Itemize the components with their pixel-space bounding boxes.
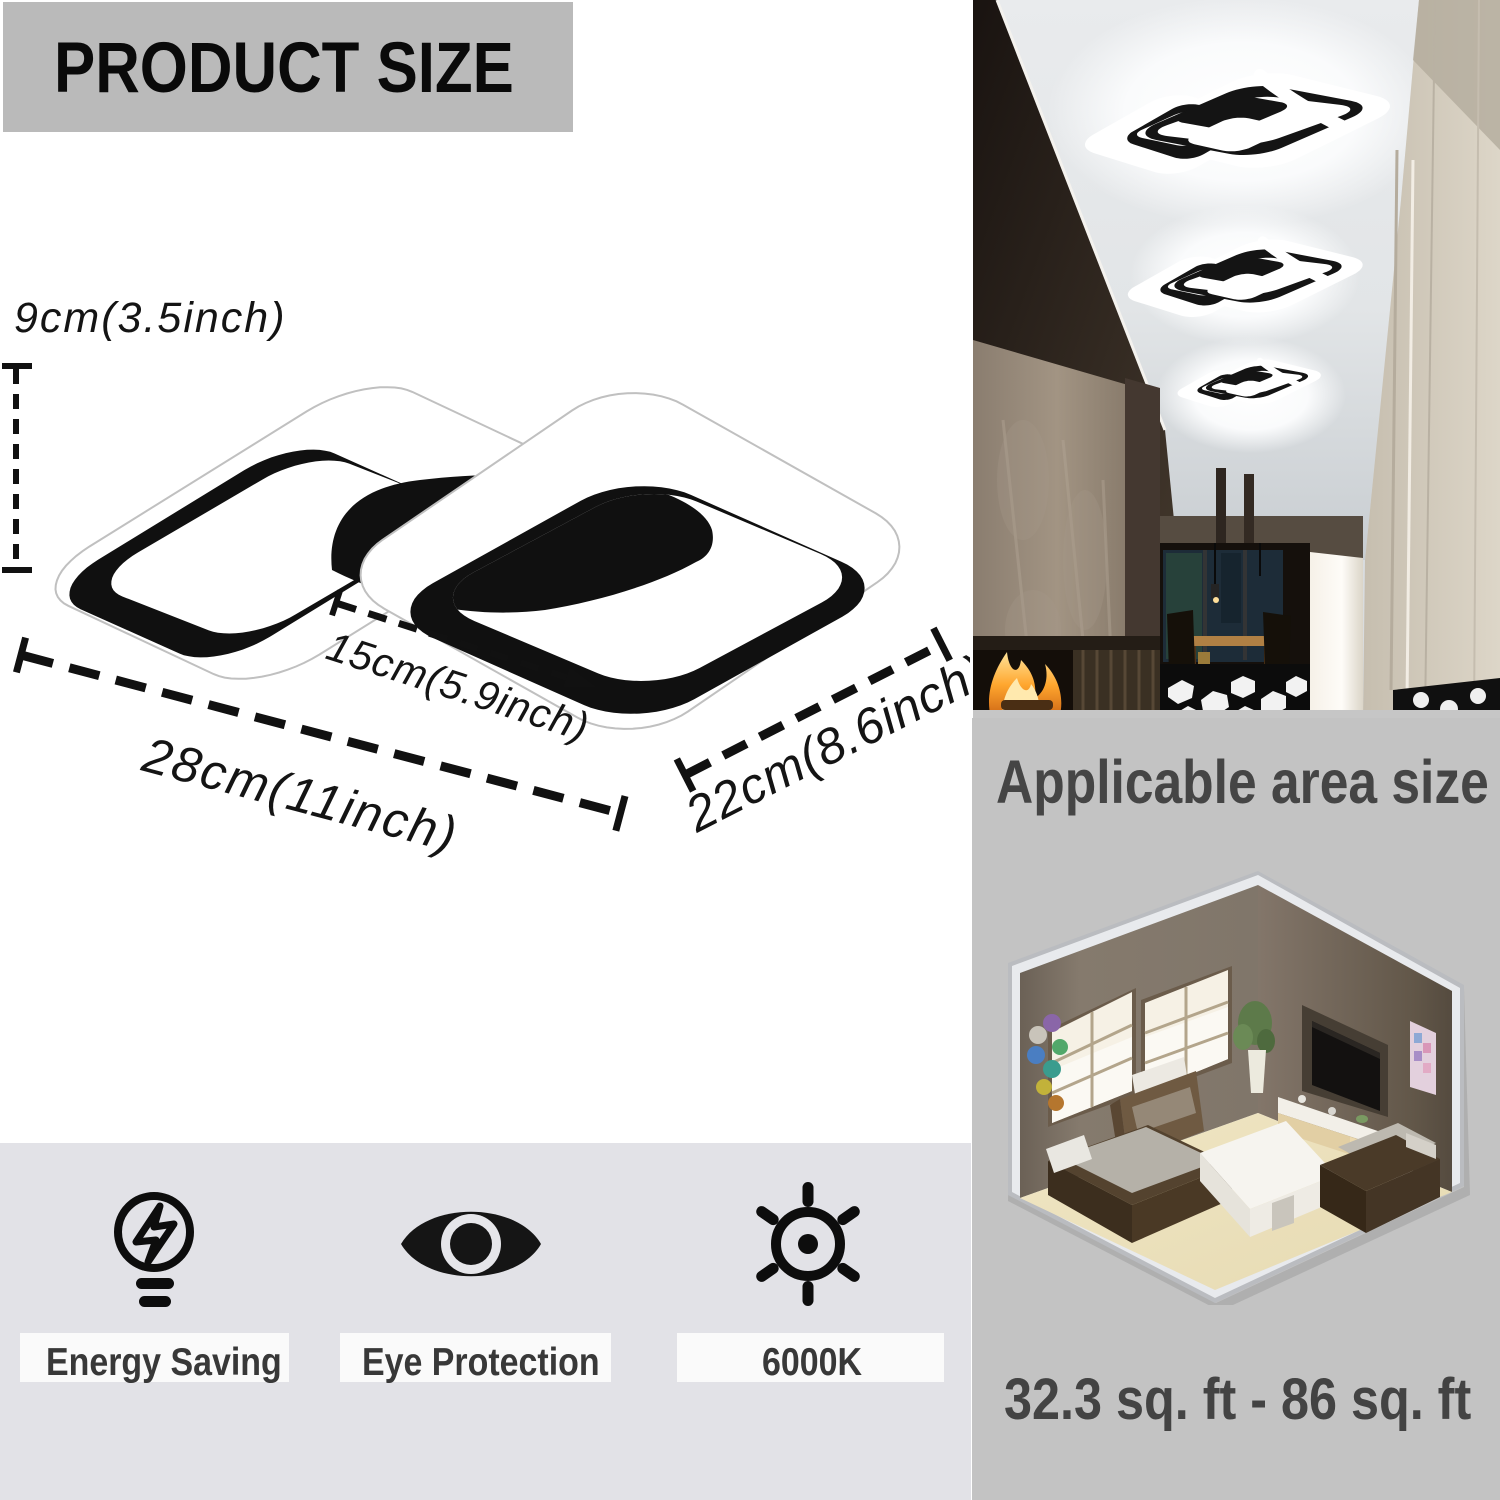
svg-text:28cm(11inch): 28cm(11inch): [136, 726, 464, 863]
svg-text:9cm(3.5inch): 9cm(3.5inch): [14, 294, 287, 342]
